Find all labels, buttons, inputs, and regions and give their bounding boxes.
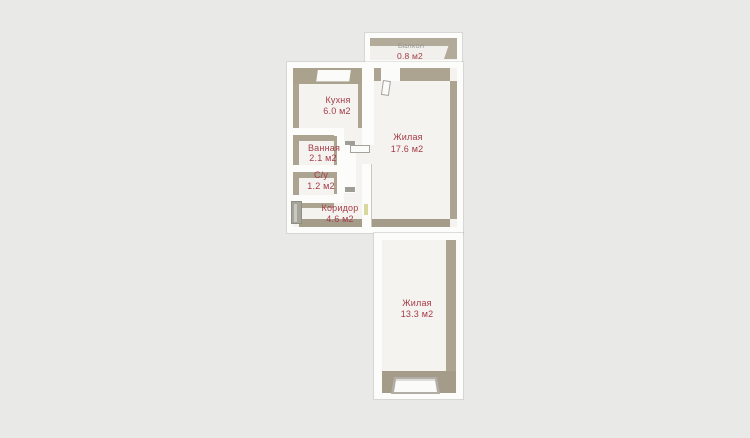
room-area-kitchen: 6.0 м2: [287, 106, 387, 116]
kitchen-bathroom-wall-face: [293, 135, 334, 141]
room-label-living2: Жилая: [367, 298, 467, 308]
room-area-corridor: 4.6 м2: [290, 214, 390, 224]
room-area-wc: 1.2 м2: [271, 181, 371, 191]
floorplan-page: { "title": "Apartment floor plan", "colo…: [0, 0, 750, 438]
room-label-wc: С/у: [271, 170, 371, 180]
living2-window-glass: [394, 379, 437, 392]
kitchen-window: [316, 70, 351, 82]
room-label-kitchen: Кухня: [288, 95, 388, 105]
room-area-living2: 13.3 м2: [367, 309, 467, 319]
room-area-bathroom: 2.1 м2: [273, 153, 373, 163]
room-label-corridor: Коридор: [290, 203, 390, 213]
room-label-living1: Жилая: [358, 132, 458, 142]
balcony-door-opening: [381, 68, 400, 81]
room-area-balcony: 0.8 м2: [360, 52, 460, 60]
room-area-living1: 17.6 м2: [357, 144, 457, 154]
kitchen-bathroom-wall: [287, 128, 344, 135]
block-separator-line: [374, 232, 463, 233]
room-label-balcony: Балкон: [361, 42, 461, 50]
